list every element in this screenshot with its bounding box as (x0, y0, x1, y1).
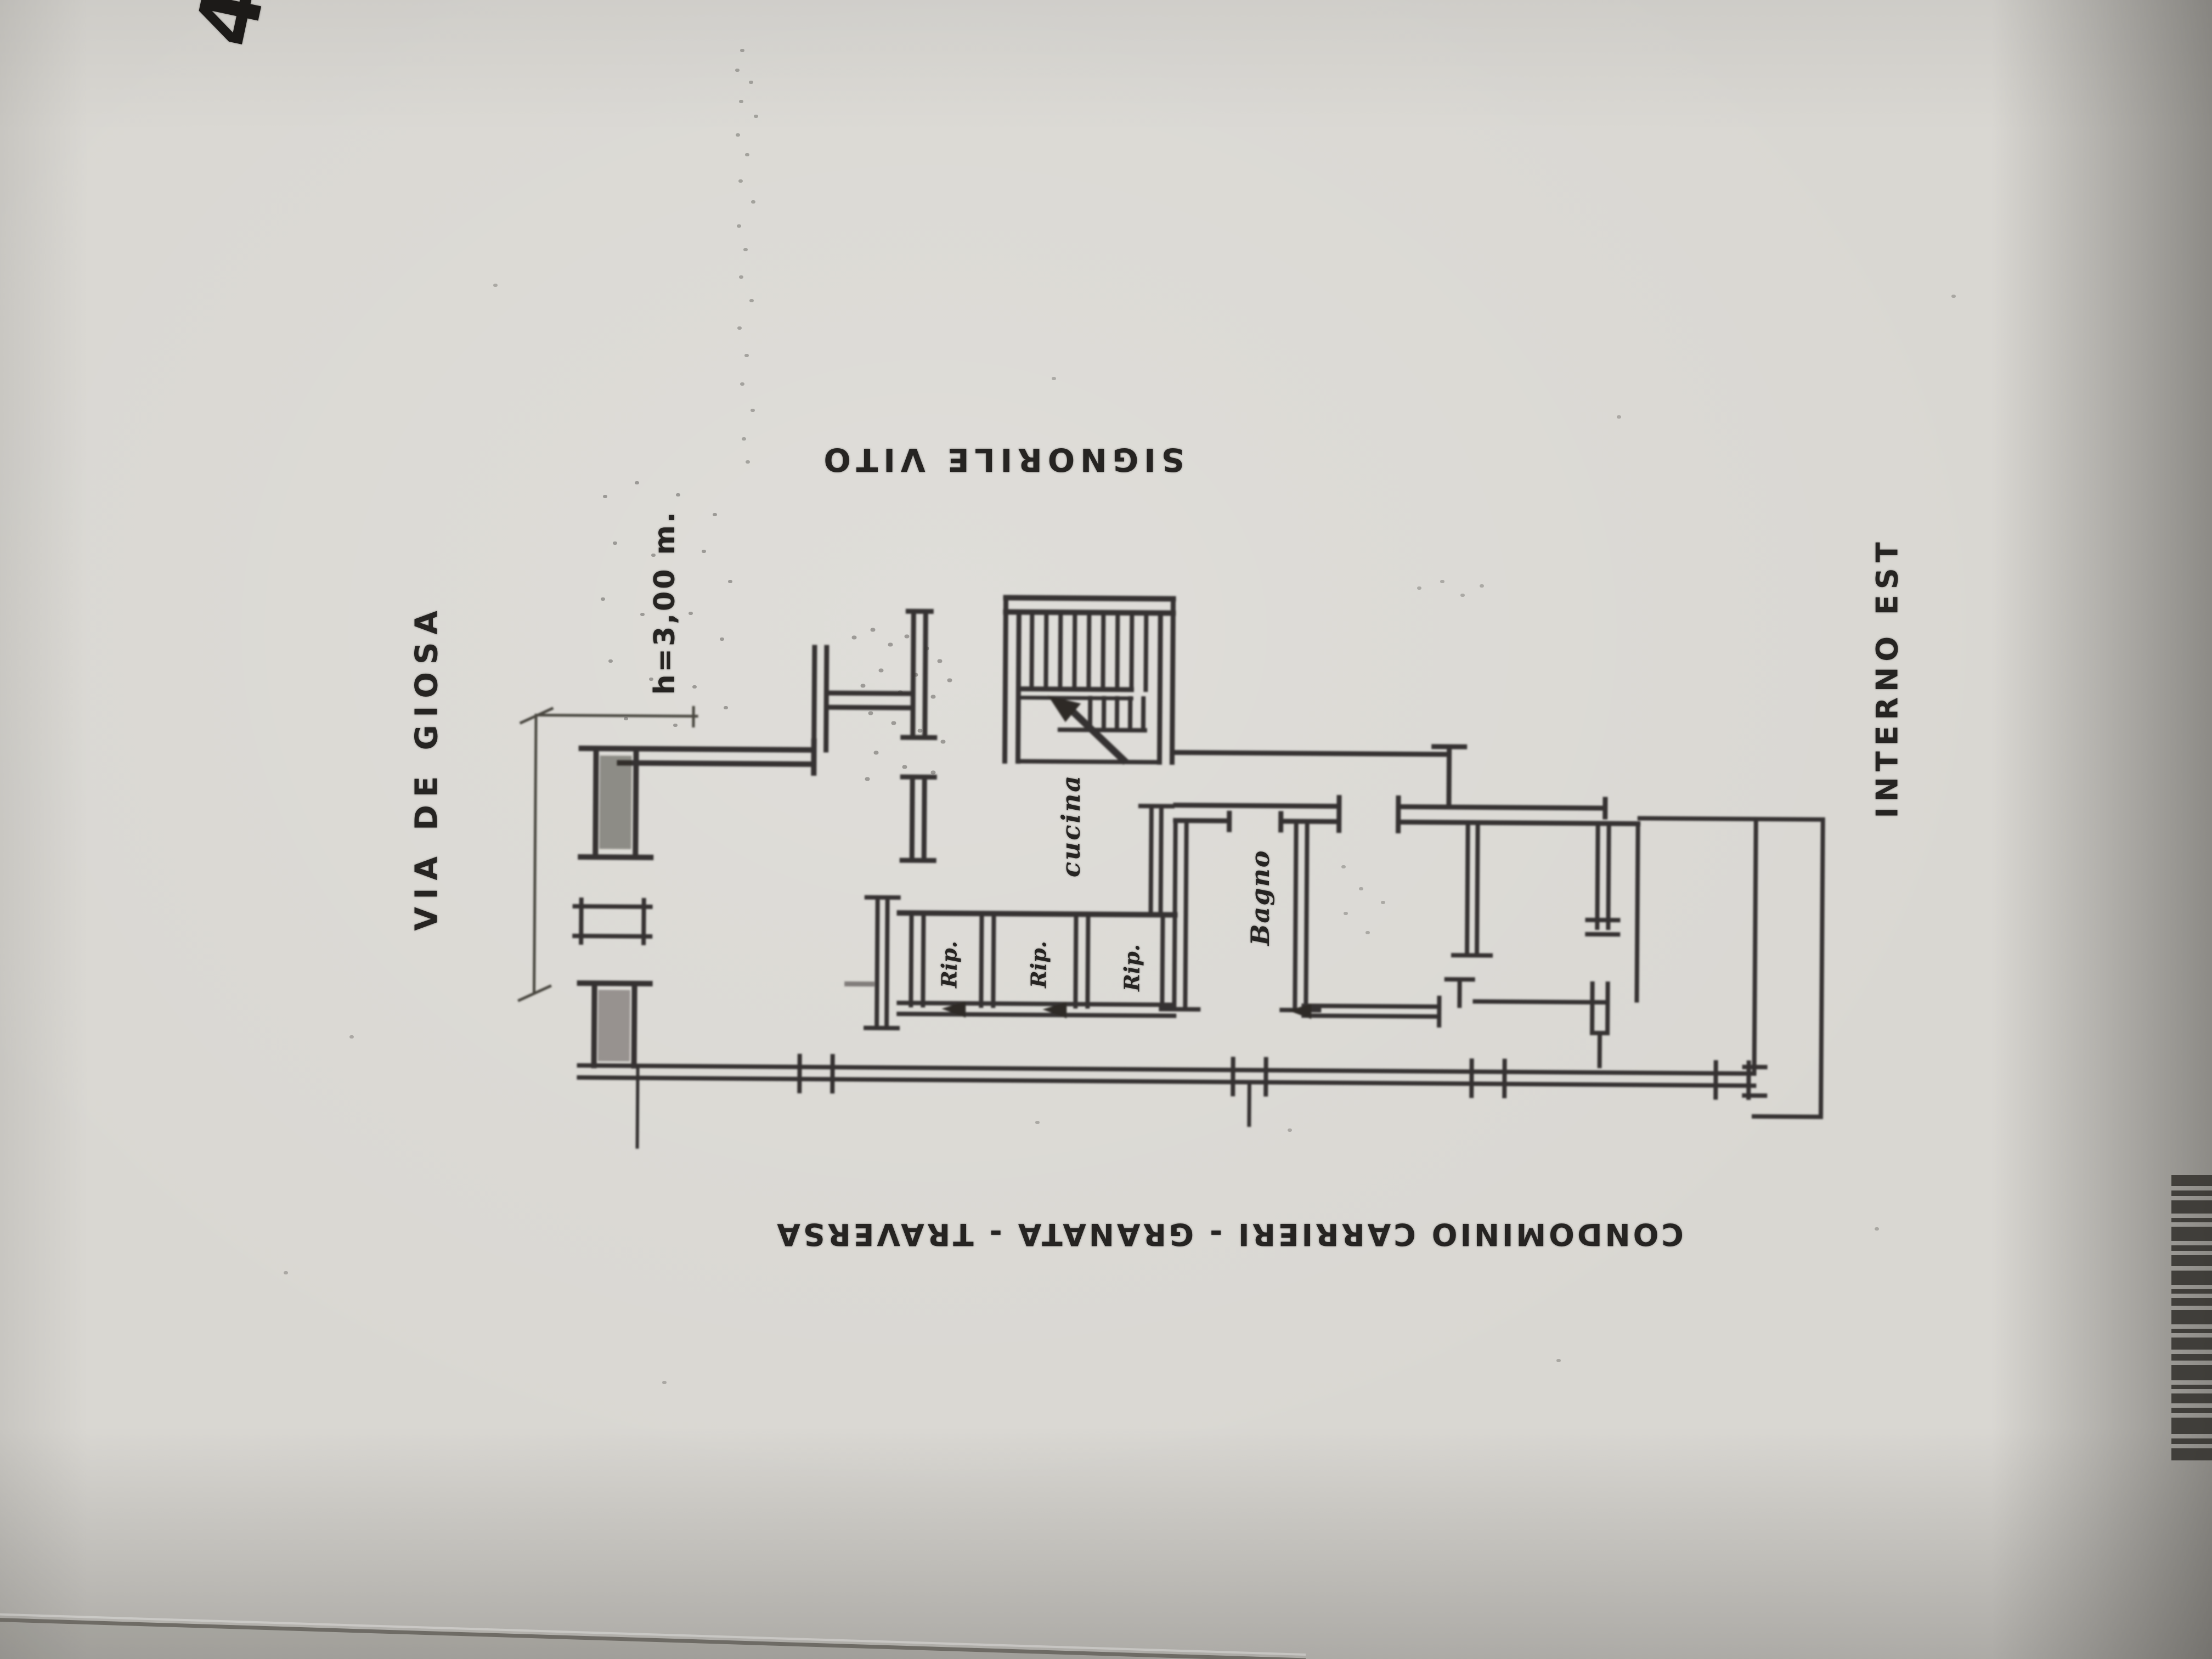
window-symbol-left (574, 900, 651, 943)
hallway-walls (1172, 745, 1639, 833)
room-label-storage-2: Rip. (1026, 941, 1051, 988)
stair-treads (1031, 612, 1146, 690)
room-label-storage-1: Rip. (937, 941, 962, 988)
ceiling-height-label: h=3,00 m. (648, 510, 681, 695)
photographed-floor-plan-page: 4 VIA DE GIOSA h=3,00 m. SIGNORILE VITO … (0, 0, 2212, 1659)
street-label: VIA DE GIOSA (409, 603, 445, 930)
bedroom-walls (1288, 821, 1638, 1066)
barcode (2171, 1175, 2212, 1460)
living-room-walls (579, 740, 814, 1067)
interior-side-label: INTERNO EST (1870, 537, 1905, 818)
room-label-storage-3: Rip. (1120, 944, 1144, 991)
terrace-walls (813, 611, 935, 861)
room-label-bathroom: Bagno (1245, 850, 1275, 946)
bathroom-walls (1161, 820, 1320, 1010)
owner-name-label: SIGNORILE VITO (818, 441, 1184, 478)
stairwell (1005, 597, 1173, 762)
floor-plan-drawing (0, 0, 2212, 1659)
bottom-wall (579, 1054, 1754, 1155)
condominium-label: CONDOMINIO CARRIERI - GRANATA - TRAVERSA (774, 1217, 1683, 1252)
paper-fold-edge (0, 1614, 1306, 1659)
room-label-kitchen: cucina (1056, 774, 1086, 877)
